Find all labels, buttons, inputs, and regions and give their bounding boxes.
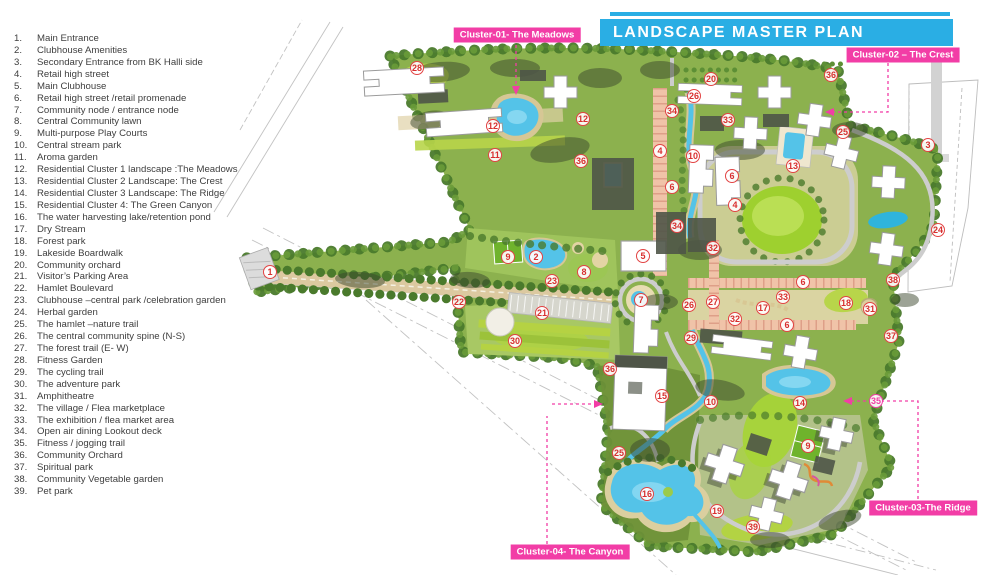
map-marker-12: 12 [576, 112, 590, 126]
legend-item: 15.Residential Cluster 4: The Green Cany… [14, 200, 238, 212]
legend-item-text: Residential Cluster 4: The Green Canyon [37, 200, 212, 212]
legend-item: 39.Pet park [14, 486, 238, 498]
legend-item-number: 17. [14, 224, 37, 236]
legend-item-text: Central stream park [37, 140, 121, 152]
legend-item: 5.Main Clubhouse [14, 81, 238, 93]
legend-item-number: 21. [14, 271, 37, 283]
legend-item: 2.Clubhouse Amenities [14, 45, 238, 57]
legend-item-number: 20. [14, 260, 37, 272]
legend-item-text: Multi-purpose Play Courts [37, 128, 147, 140]
legend-item-text: The cycling trail [37, 367, 104, 379]
landscape-master-plan-page: 1.Main Entrance2.Clubhouse Amenities3.Se… [0, 0, 1000, 575]
legend-item-number: 11. [14, 152, 37, 164]
legend-item-number: 32. [14, 403, 37, 415]
legend-item: 11.Aroma garden [14, 152, 238, 164]
legend-item-number: 9. [14, 128, 37, 140]
map-marker-6: 6 [796, 275, 810, 289]
map-marker-39: 39 [746, 520, 760, 534]
map-marker-2: 2 [529, 250, 543, 264]
legend-item-text: Community Orchard [37, 450, 123, 462]
legend-item-number: 15. [14, 200, 37, 212]
legend-item-text: The exhibition / flea market area [37, 415, 174, 427]
map-marker-32: 32 [706, 241, 720, 255]
legend-item-number: 18. [14, 236, 37, 248]
legend-item-number: 37. [14, 462, 37, 474]
legend-item: 30.The adventure park [14, 379, 238, 391]
cluster-02-label: Cluster-02 – The Crest [847, 48, 960, 63]
legend-item-text: The central community spine (N-S) [37, 331, 185, 343]
legend-item-text: Residential Cluster 2 Landscape: The Cre… [37, 176, 222, 188]
legend-item: 10.Central stream park [14, 140, 238, 152]
legend-item: 33.The exhibition / flea market area [14, 415, 238, 427]
legend-item-number: 22. [14, 283, 37, 295]
legend-item: 29.The cycling trail [14, 367, 238, 379]
legend-item-number: 33. [14, 415, 37, 427]
legend-item-number: 34. [14, 426, 37, 438]
map-marker-33: 33 [776, 290, 790, 304]
map-marker-25: 25 [612, 446, 626, 460]
legend-item-number: 10. [14, 140, 37, 152]
legend-item: 4.Retail high street [14, 69, 238, 81]
map-marker-3: 3 [921, 138, 935, 152]
map-marker-37: 37 [884, 329, 898, 343]
map-marker-36: 36 [574, 154, 588, 168]
legend-item-text: The hamlet –nature trail [37, 319, 138, 331]
map-marker-1: 1 [263, 265, 277, 279]
map-marker-30: 30 [508, 334, 522, 348]
legend-item-text: Secondary Entrance from BK Halli side [37, 57, 203, 69]
page-title: LANDSCAPE MASTER PLAN [613, 24, 864, 41]
legend-item: 20.Community orchard [14, 260, 238, 272]
map-marker-7: 7 [634, 293, 648, 307]
legend-item: 19.Lakeside Boardwalk [14, 248, 238, 260]
legend-item: 32.The village / Flea marketplace [14, 403, 238, 415]
map-marker-12: 12 [486, 119, 500, 133]
legend-item-number: 29. [14, 367, 37, 379]
legend-item-number: 8. [14, 116, 37, 128]
map-marker-26: 26 [687, 89, 701, 103]
map-marker-36: 36 [824, 68, 838, 82]
map-marker-17: 17 [756, 301, 770, 315]
map-marker-13: 13 [786, 159, 800, 173]
legend-item-number: 13. [14, 176, 37, 188]
legend-item-number: 23. [14, 295, 37, 307]
legend-item: 24.Herbal garden [14, 307, 238, 319]
map-marker-36: 36 [603, 362, 617, 376]
legend-item-number: 36. [14, 450, 37, 462]
legend-item: 1.Main Entrance [14, 33, 238, 45]
legend-item: 18.Forest park [14, 236, 238, 248]
legend-item: 7.Community node / entrance node [14, 105, 238, 117]
legend-item-text: Central Community lawn [37, 116, 142, 128]
map-marker-22: 22 [452, 295, 466, 309]
legend-item: 25.The hamlet –nature trail [14, 319, 238, 331]
legend-item-number: 14. [14, 188, 37, 200]
map-marker-24: 24 [931, 223, 945, 237]
map-marker-18: 18 [839, 296, 853, 310]
title-banner: LANDSCAPE MASTER PLAN [600, 19, 953, 46]
legend-item-number: 31. [14, 391, 37, 403]
legend-item: 27.The forest trail (E- W) [14, 343, 238, 355]
legend-item-text: Fitness / jogging trail [37, 438, 125, 450]
map-marker-38: 38 [886, 273, 900, 287]
map-marker-29: 29 [684, 331, 698, 345]
legend-item-text: The village / Flea marketplace [37, 403, 165, 415]
legend-item-text: Main Entrance [37, 33, 99, 45]
legend-item-number: 5. [14, 81, 37, 93]
map-marker-4: 4 [653, 144, 667, 158]
legend-item: 22.Hamlet Boulevard [14, 283, 238, 295]
legend-item: 3.Secondary Entrance from BK Halli side [14, 57, 238, 69]
legend-item-text: Community node / entrance node [37, 105, 179, 117]
legend-item-number: 6. [14, 93, 37, 105]
legend-item: 35.Fitness / jogging trail [14, 438, 238, 450]
legend-item: 6.Retail high street /retail promenade [14, 93, 238, 105]
map-marker-4: 4 [728, 198, 742, 212]
map-marker-6: 6 [780, 318, 794, 332]
map-marker-6: 6 [725, 169, 739, 183]
legend-item: 36.Community Orchard [14, 450, 238, 462]
legend-item: 31.Amphitheatre [14, 391, 238, 403]
map-marker-31: 31 [863, 302, 877, 316]
legend-item: 9.Multi-purpose Play Courts [14, 128, 238, 140]
legend-item-number: 27. [14, 343, 37, 355]
map-marker-8: 8 [577, 265, 591, 279]
cluster-03-label: Cluster-03-The Ridge [869, 501, 977, 516]
legend-item-text: Spiritual park [37, 462, 93, 474]
legend-item-text: Visitor’s Parking Area [37, 271, 128, 283]
cluster-01-label: Cluster-01- The Meadows [454, 28, 581, 43]
legend-item-text: Retail high street [37, 69, 109, 81]
legend-item: 8.Central Community lawn [14, 116, 238, 128]
legend-item-text: Clubhouse –central park /celebration gar… [37, 295, 226, 307]
legend-item-number: 39. [14, 486, 37, 498]
legend-item-text: Residential Cluster 3 Landscape: The Rid… [37, 188, 225, 200]
map-marker-20: 20 [704, 72, 718, 86]
map-marker-11: 11 [488, 148, 502, 162]
legend-item-text: Community orchard [37, 260, 121, 272]
legend-item-text: Lakeside Boardwalk [37, 248, 123, 260]
legend-item: 13.Residential Cluster 2 Landscape: The … [14, 176, 238, 188]
legend-item: 37.Spiritual park [14, 462, 238, 474]
map-marker-35: 35 [869, 394, 883, 408]
legend-item: 28.Fitness Garden [14, 355, 238, 367]
legend-item-text: The forest trail (E- W) [37, 343, 129, 355]
legend-item-text: Retail high street /retail promenade [37, 93, 186, 105]
map-marker-27: 27 [706, 295, 720, 309]
map-marker-34: 34 [670, 219, 684, 233]
map-marker-10: 10 [704, 395, 718, 409]
legend-item-text: Dry Stream [37, 224, 86, 236]
legend-item-number: 30. [14, 379, 37, 391]
legend-item-number: 12. [14, 164, 37, 176]
map-marker-23: 23 [545, 274, 559, 288]
legend-item-text: Aroma garden [37, 152, 98, 164]
legend-item: 12.Residential Cluster 1 landscape :The … [14, 164, 238, 176]
map-marker-19: 19 [710, 504, 724, 518]
legend-item-number: 16. [14, 212, 37, 224]
map-marker-14: 14 [793, 396, 807, 410]
legend-item-text: Fitness Garden [37, 355, 103, 367]
legend-item: 34.Open air dining Lookout deck [14, 426, 238, 438]
legend-item-text: Herbal garden [37, 307, 98, 319]
legend-item-text: Amphitheatre [37, 391, 94, 403]
legend-item-text: Hamlet Boulevard [37, 283, 113, 295]
legend-item-number: 24. [14, 307, 37, 319]
legend-item-number: 25. [14, 319, 37, 331]
legend-item-text: Open air dining Lookout deck [37, 426, 162, 438]
map-marker-25: 25 [836, 125, 850, 139]
legend-item-text: The adventure park [37, 379, 120, 391]
legend-item-text: Residential Cluster 1 landscape :The Mea… [37, 164, 238, 176]
map-marker-6: 6 [665, 180, 679, 194]
legend-item: 23.Clubhouse –central park /celebration … [14, 295, 238, 307]
legend-item-number: 3. [14, 57, 37, 69]
legend-item: 16.The water harvesting lake/retention p… [14, 212, 238, 224]
map-marker-28: 28 [410, 61, 424, 75]
map-marker-15: 15 [655, 389, 669, 403]
map-marker-26: 26 [682, 298, 696, 312]
legend-item-text: Main Clubhouse [37, 81, 106, 93]
banner-accent-strip [610, 12, 950, 16]
legend-item-text: Clubhouse Amenities [37, 45, 127, 57]
map-marker-5: 5 [636, 249, 650, 263]
map-marker-9: 9 [501, 250, 515, 264]
map-marker-21: 21 [535, 306, 549, 320]
map-marker-34: 34 [665, 104, 679, 118]
map-marker-16: 16 [640, 487, 654, 501]
map-marker-10: 10 [686, 149, 700, 163]
legend-item: 21.Visitor’s Parking Area [14, 271, 238, 283]
legend-item-number: 4. [14, 69, 37, 81]
legend-item-number: 2. [14, 45, 37, 57]
legend-item-text: Community Vegetable garden [37, 474, 163, 486]
legend-list: 1.Main Entrance2.Clubhouse Amenities3.Se… [14, 33, 238, 498]
legend-item: 26.The central community spine (N-S) [14, 331, 238, 343]
cluster-04-label: Cluster-04- The Canyon [511, 545, 630, 560]
legend-item-number: 38. [14, 474, 37, 486]
legend-item-number: 35. [14, 438, 37, 450]
legend-item-number: 28. [14, 355, 37, 367]
legend-item: 14.Residential Cluster 3 Landscape: The … [14, 188, 238, 200]
map-marker-9: 9 [801, 439, 815, 453]
legend-item: 17.Dry Stream [14, 224, 238, 236]
map-marker-32: 32 [728, 312, 742, 326]
legend-item-text: The water harvesting lake/retention pond [37, 212, 211, 224]
legend-item-number: 26. [14, 331, 37, 343]
legend-item-text: Pet park [37, 486, 73, 498]
legend-item-text: Forest park [37, 236, 86, 248]
legend-item-number: 19. [14, 248, 37, 260]
legend-item: 38.Community Vegetable garden [14, 474, 238, 486]
legend-item-number: 1. [14, 33, 37, 45]
legend-item-number: 7. [14, 105, 37, 117]
map-marker-33: 33 [721, 113, 735, 127]
